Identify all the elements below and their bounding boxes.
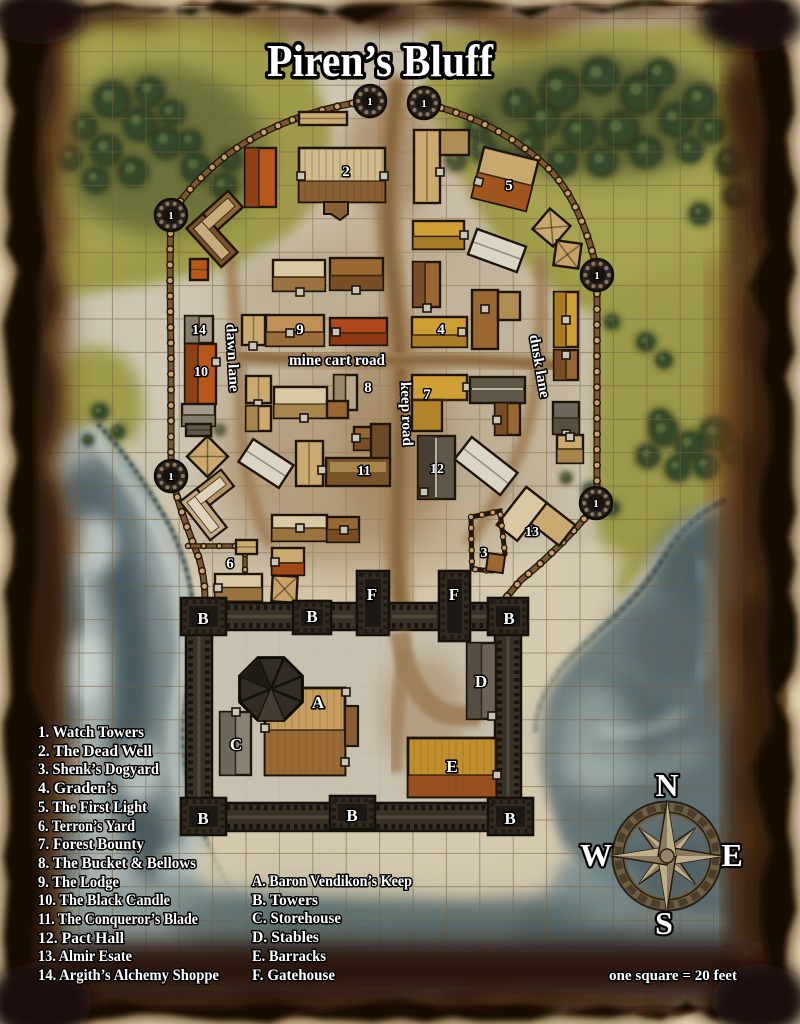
svg-text:8. The Bucket & Bellows: 8. The Bucket & Bellows <box>38 855 196 872</box>
svg-text:F: F <box>449 585 459 604</box>
svg-text:10. The Black Candle: 10. The Black Candle <box>38 892 170 909</box>
svg-text:6: 6 <box>226 556 234 572</box>
svg-text:one square = 20 feet: one square = 20 feet <box>609 968 737 984</box>
svg-text:3: 3 <box>481 546 488 561</box>
svg-text:14. Argith’s Alchemy Shoppe: 14. Argith’s Alchemy Shoppe <box>38 967 219 984</box>
svg-text:B: B <box>197 609 208 628</box>
svg-text:C. Storehouse: C. Storehouse <box>252 910 341 927</box>
svg-text:B: B <box>346 806 357 825</box>
svg-text:keep road: keep road <box>397 382 415 447</box>
svg-text:11: 11 <box>357 464 370 479</box>
svg-text:5. The First Light: 5. The First Light <box>38 799 148 816</box>
svg-text:5: 5 <box>505 178 513 194</box>
svg-text:E. Barracks: E. Barracks <box>252 948 326 965</box>
svg-text:7: 7 <box>423 387 431 403</box>
svg-text:3. Shenk’s Dogyard: 3. Shenk’s Dogyard <box>38 761 159 778</box>
svg-text:9. The Lodge: 9. The Lodge <box>38 874 119 891</box>
svg-text:1. Watch Towers: 1. Watch Towers <box>38 724 144 741</box>
svg-text:1: 1 <box>168 471 174 483</box>
svg-text:B: B <box>306 607 317 626</box>
svg-text:7. Forest Bounty: 7. Forest Bounty <box>38 836 144 853</box>
svg-text:12. Pact Hall: 12. Pact Hall <box>38 930 125 947</box>
svg-text:Piren’s Bluff: Piren’s Bluff <box>267 35 494 86</box>
svg-text:B. Towers: B. Towers <box>252 892 318 909</box>
svg-text:8: 8 <box>364 380 372 396</box>
svg-text:1: 1 <box>168 210 174 222</box>
svg-text:N: N <box>655 767 678 803</box>
svg-text:6. Terron’s Yard: 6. Terron’s Yard <box>38 818 135 835</box>
svg-text:A: A <box>312 693 325 712</box>
svg-text:1: 1 <box>421 98 427 110</box>
svg-text:11. The Conqueror’s Blade: 11. The Conqueror’s Blade <box>38 911 198 928</box>
svg-text:B: B <box>503 609 514 628</box>
svg-text:1: 1 <box>594 270 600 282</box>
svg-text:B: B <box>504 809 515 828</box>
svg-text:1: 1 <box>367 96 373 108</box>
svg-text:A. Baron Vendikon’s Keep: A. Baron Vendikon’s Keep <box>252 873 412 890</box>
svg-text:S: S <box>655 905 673 941</box>
svg-text:E: E <box>721 837 742 873</box>
svg-text:2: 2 <box>342 164 350 180</box>
svg-text:F. Gatehouse: F. Gatehouse <box>252 967 335 984</box>
svg-text:2. The Dead Well: 2. The Dead Well <box>38 743 153 760</box>
svg-text:D. Stables: D. Stables <box>252 929 319 946</box>
svg-text:C: C <box>230 735 242 754</box>
svg-text:B: B <box>197 809 208 828</box>
svg-text:4. Graden’s: 4. Graden’s <box>38 780 117 797</box>
svg-text:14: 14 <box>192 323 206 338</box>
svg-text:F: F <box>367 585 377 604</box>
svg-text:D: D <box>475 672 487 691</box>
svg-text:W: W <box>580 837 612 873</box>
svg-text:4: 4 <box>437 322 445 338</box>
svg-text:mine cart road: mine cart road <box>289 352 385 369</box>
svg-text:E: E <box>446 757 457 776</box>
svg-text:13. Almir Esate: 13. Almir Esate <box>38 948 132 965</box>
svg-text:1: 1 <box>593 498 599 510</box>
svg-text:9: 9 <box>296 322 304 338</box>
svg-text:10: 10 <box>194 365 208 380</box>
svg-text:13: 13 <box>525 525 539 540</box>
